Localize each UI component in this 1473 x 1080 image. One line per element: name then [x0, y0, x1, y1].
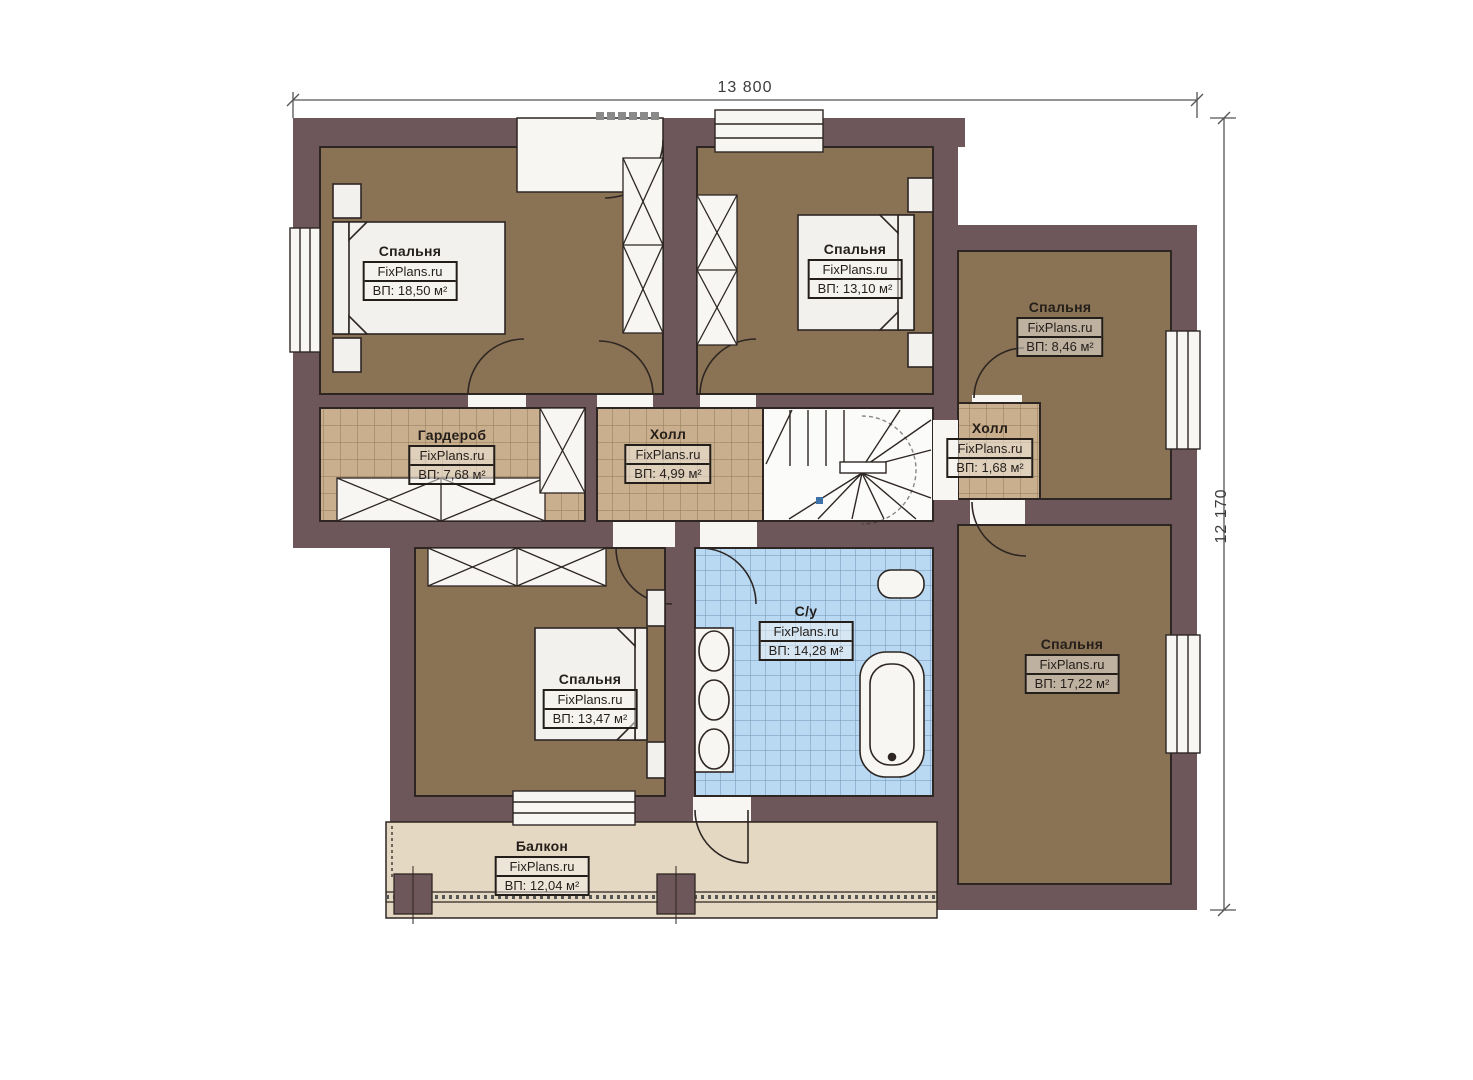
room-label-bedroom-top-left: Спальня FixPlans.ru ВП: 18,50 м²	[363, 243, 458, 301]
closet-icon	[697, 195, 737, 345]
sink-counter-icon	[695, 628, 733, 772]
room-name: Гардероб	[408, 427, 495, 443]
room-area: ВП: 18,50 м²	[365, 282, 456, 299]
nightstand-icon	[908, 178, 933, 212]
room-info-box: FixPlans.ru ВП: 12,04 м²	[495, 856, 590, 896]
room-name: Спальня	[363, 243, 458, 259]
room-floor-bedroom-right	[958, 525, 1171, 884]
toilet-icon	[878, 570, 924, 598]
room-info-box: FixPlans.ru ВП: 13,10 м²	[808, 259, 903, 299]
window	[1166, 331, 1200, 449]
bathtub-icon	[860, 652, 924, 777]
window	[1166, 635, 1200, 753]
room-info-box: FixPlans.ru ВП: 17,22 м²	[1025, 654, 1120, 694]
stair-landing	[840, 462, 886, 473]
room-site: FixPlans.ru	[626, 446, 709, 465]
room-area: ВП: 8,46 м²	[1018, 338, 1101, 355]
room-label-bedroom-right: Спальня FixPlans.ru ВП: 17,22 м²	[1025, 636, 1120, 694]
wall-segment	[955, 884, 1197, 910]
room-site: FixPlans.ru	[761, 623, 852, 642]
wall-segment	[933, 118, 958, 884]
room-name: С/у	[759, 603, 854, 619]
room-label-wardrobe: Гардероб FixPlans.ru ВП: 7,68 м²	[408, 427, 495, 485]
room-area: ВП: 17,22 м²	[1027, 675, 1118, 692]
nightstand-icon	[647, 742, 665, 778]
closet-icon	[428, 548, 606, 586]
room-site: FixPlans.ru	[1018, 319, 1101, 338]
room-name: Спальня	[543, 671, 638, 687]
room-info-box: FixPlans.ru ВП: 8,46 м²	[1016, 317, 1103, 357]
dimension-width-label: 13 800	[718, 79, 773, 97]
nightstand-icon	[333, 338, 361, 372]
room-site: FixPlans.ru	[365, 263, 456, 282]
door-gap	[700, 395, 756, 407]
wall-segment	[663, 118, 697, 408]
section-marker	[816, 497, 823, 504]
room-site: FixPlans.ru	[410, 447, 493, 466]
room-name: Холл	[946, 420, 1033, 436]
wall-segment	[390, 796, 937, 822]
room-label-hall-small: Холл FixPlans.ru ВП: 1,68 м²	[946, 420, 1033, 478]
room-site: FixPlans.ru	[810, 261, 901, 280]
room-name: Балкон	[495, 838, 590, 854]
room-label-bedroom-top-middle: Спальня FixPlans.ru ВП: 13,10 м²	[808, 241, 903, 299]
room-label-bathroom: С/у FixPlans.ru ВП: 14,28 м²	[759, 603, 854, 661]
room-site: FixPlans.ru	[497, 858, 588, 877]
room-info-box: FixPlans.ru ВП: 13,47 м²	[543, 689, 638, 729]
room-info-box: FixPlans.ru ВП: 4,99 м²	[624, 444, 711, 484]
room-area: ВП: 12,04 м²	[497, 877, 588, 894]
wall-segment	[955, 225, 1197, 251]
nightstand-icon	[647, 590, 665, 626]
door-gap	[700, 522, 757, 547]
window	[513, 791, 635, 825]
room-site: FixPlans.ru	[1027, 656, 1118, 675]
room-area: ВП: 13,10 м²	[810, 280, 901, 297]
room-name: Спальня	[808, 241, 903, 257]
room-label-bedroom-bottom: Спальня FixPlans.ru ВП: 13,47 м²	[543, 671, 638, 729]
wall-segment	[665, 548, 695, 796]
room-area: ВП: 14,28 м²	[761, 642, 852, 659]
room-area: ВП: 13,47 м²	[545, 710, 636, 727]
wall-segment	[585, 408, 597, 521]
wall-segment	[1171, 225, 1197, 910]
room-area: ВП: 1,68 м²	[948, 459, 1031, 476]
closet-icon	[623, 158, 663, 333]
window	[715, 110, 823, 152]
door-gap	[597, 395, 653, 407]
nightstand-icon	[333, 184, 361, 218]
nightstand-icon	[908, 333, 933, 367]
room-info-box: FixPlans.ru ВП: 14,28 м²	[759, 621, 854, 661]
room-info-box: FixPlans.ru ВП: 7,68 м²	[408, 445, 495, 485]
room-label-balcony: Балкон FixPlans.ru ВП: 12,04 м²	[495, 838, 590, 896]
closet-icon	[540, 408, 585, 493]
wall-segment	[390, 521, 415, 822]
door-gap	[970, 500, 1025, 524]
room-area: ВП: 7,68 м²	[410, 466, 493, 483]
room-site: FixPlans.ru	[545, 691, 636, 710]
room-label-hall: Холл FixPlans.ru ВП: 4,99 м²	[624, 426, 711, 484]
room-label-bedroom-top-right: Спальня FixPlans.ru ВП: 8,46 м²	[1016, 299, 1103, 357]
door-gap	[613, 522, 675, 547]
door-gap	[693, 797, 751, 821]
floor-plan: 13 800 12 170 Спальня FixPlans.ru ВП: 18…	[0, 0, 1473, 1080]
room-name: Спальня	[1025, 636, 1120, 652]
room-info-box: FixPlans.ru ВП: 18,50 м²	[363, 261, 458, 301]
room-site: FixPlans.ru	[948, 440, 1031, 459]
room-name: Холл	[624, 426, 711, 442]
room-name: Спальня	[1016, 299, 1103, 315]
door-gap	[468, 395, 526, 407]
dimension-height-label: 12 170	[1213, 489, 1231, 544]
room-info-box: FixPlans.ru ВП: 1,68 м²	[946, 438, 1033, 478]
door-gap	[972, 395, 1022, 402]
room-area: ВП: 4,99 м²	[626, 465, 709, 482]
floor-plan-drawing	[0, 0, 1473, 1080]
window	[290, 228, 320, 352]
